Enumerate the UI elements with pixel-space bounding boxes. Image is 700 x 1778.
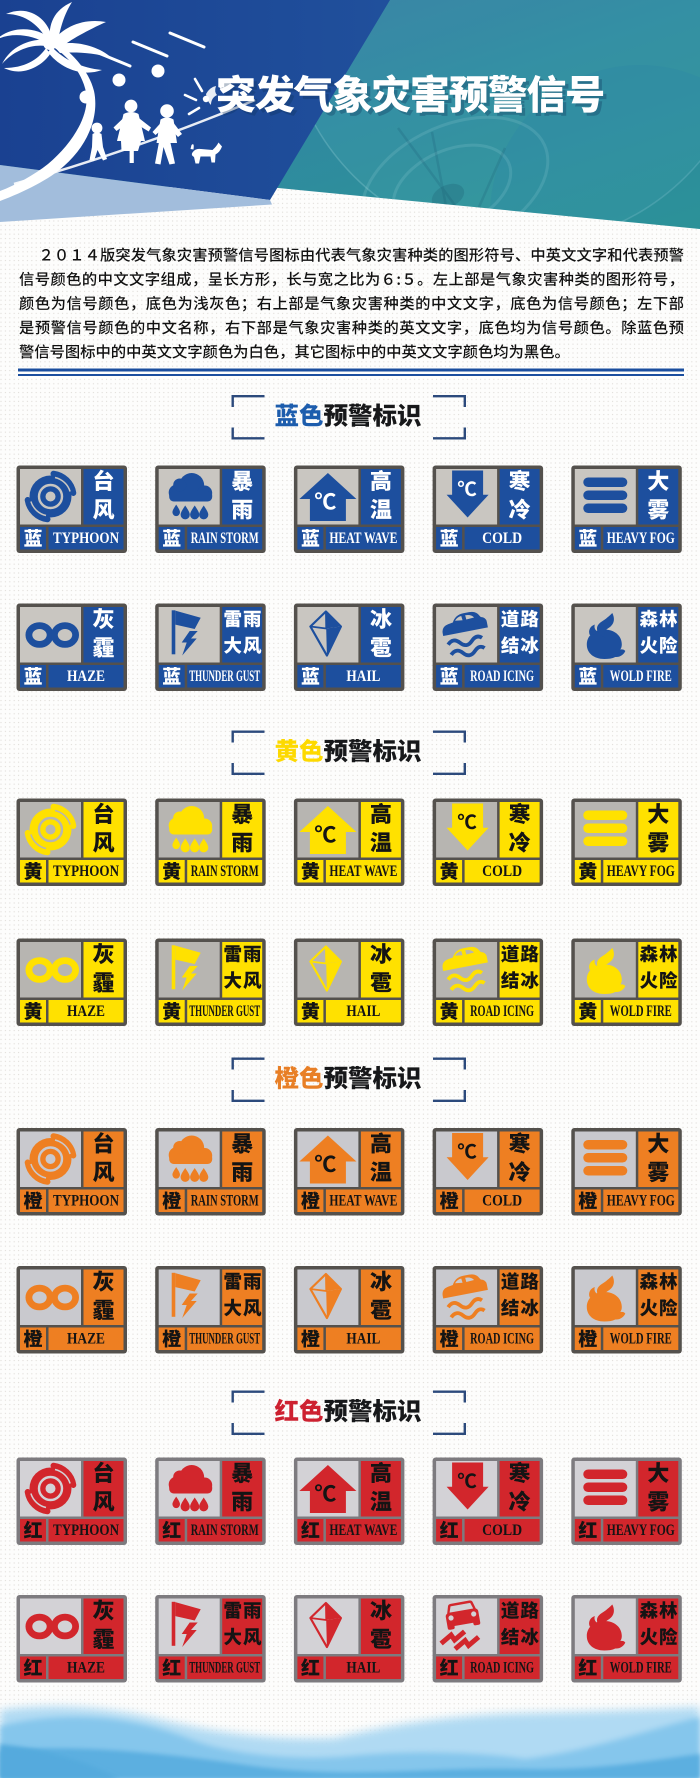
svg-text:HEAT WAVE: HEAT WAVE [329,1193,397,1210]
svg-text:THUNDER GUST: THUNDER GUST [189,1003,260,1020]
svg-text:RAIN STORM: RAIN STORM [191,863,259,880]
svg-text:HEAVY FOG: HEAVY FOG [607,1522,675,1539]
svg-text:HAZE: HAZE [67,1660,105,1677]
svg-text:RAIN STORM: RAIN STORM [191,1193,259,1210]
svg-text:WOLD FIRE: WOLD FIRE [610,1003,672,1020]
svg-text:COLD: COLD [482,863,522,880]
svg-text:COLD: COLD [482,1522,522,1539]
svg-text:ROAD ICING: ROAD ICING [470,668,534,685]
svg-text:WOLD FIRE: WOLD FIRE [610,1660,672,1677]
svg-text:HEAVY FOG: HEAVY FOG [607,863,675,880]
svg-text:TYPHOON: TYPHOON [53,1522,119,1539]
svg-text:HAZE: HAZE [67,1331,105,1348]
svg-text:THUNDER GUST: THUNDER GUST [189,668,260,685]
svg-text:HEAT WAVE: HEAT WAVE [329,1522,397,1539]
svg-text:HAIL: HAIL [346,1003,380,1020]
svg-text:RAIN STORM: RAIN STORM [191,530,259,547]
svg-text:ROAD ICING: ROAD ICING [470,1003,534,1020]
svg-text:HAZE: HAZE [67,1003,105,1020]
svg-text:ROAD ICING: ROAD ICING [470,1660,534,1677]
svg-text:HEAT WAVE: HEAT WAVE [329,530,397,547]
svg-text:COLD: COLD [482,1193,522,1210]
svg-text:COLD: COLD [482,530,522,547]
svg-text:THUNDER GUST: THUNDER GUST [189,1660,260,1677]
svg-text:WOLD FIRE: WOLD FIRE [610,1331,672,1348]
svg-text:TYPHOON: TYPHOON [53,530,119,547]
svg-text:TYPHOON: TYPHOON [53,863,119,880]
svg-text:HEAT WAVE: HEAT WAVE [329,863,397,880]
svg-text:HEAVY FOG: HEAVY FOG [607,530,675,547]
svg-text:HAZE: HAZE [67,668,105,685]
svg-text:HAIL: HAIL [346,1331,380,1348]
svg-text:THUNDER GUST: THUNDER GUST [189,1331,260,1348]
svg-text:WOLD FIRE: WOLD FIRE [610,668,672,685]
svg-text:HAIL: HAIL [346,1660,380,1677]
svg-text:RAIN STORM: RAIN STORM [191,1522,259,1539]
svg-text:ROAD ICING: ROAD ICING [470,1331,534,1348]
svg-text:HEAVY FOG: HEAVY FOG [607,1193,675,1210]
svg-text:TYPHOON: TYPHOON [53,1193,119,1210]
svg-text:HAIL: HAIL [346,668,380,685]
